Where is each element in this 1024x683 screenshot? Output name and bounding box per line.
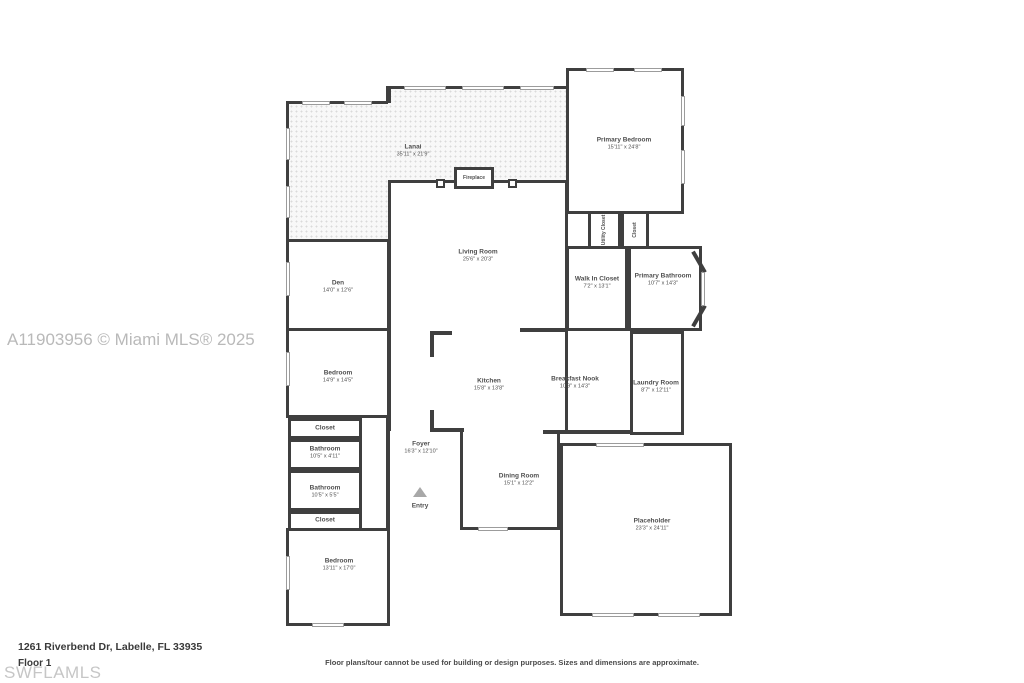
room-label-dining: Dining Room 15'1" x 12'2" <box>499 472 539 489</box>
wall-segment <box>520 328 568 332</box>
door-symbol <box>436 179 445 188</box>
room-label-kitchen: Kitchen 15'8" x 13'8" <box>474 377 504 394</box>
window <box>592 613 634 617</box>
room-label-placeholder: Placeholder 23'3" x 24'11" <box>634 517 671 534</box>
window <box>286 352 290 386</box>
room-label-utility-closet: Utility Closet <box>601 215 607 246</box>
window <box>596 443 644 447</box>
room-label-primary-bathroom: Primary Bathroom 10'7" x 14'3" <box>635 272 692 289</box>
wall-segment <box>430 428 464 432</box>
window <box>681 150 685 184</box>
entry-arrow-icon <box>413 487 427 497</box>
window <box>404 86 446 90</box>
room-label-bathroom-2: Bathroom 10'5" x 5'5" <box>310 484 341 501</box>
mls-watermark: A11903956 © Miami MLS® 2025 <box>7 330 255 350</box>
room-label-closet-a: Closet <box>315 423 335 432</box>
window <box>586 68 614 72</box>
property-address: 1261 Riverbend Dr, Labelle, FL 33935 <box>18 641 202 653</box>
room-label-breakfast-nook: Breakfast Nook 10'9" x 14'3" <box>551 375 599 392</box>
window <box>462 86 504 90</box>
fireplace: Fireplace <box>454 167 494 189</box>
window <box>634 68 662 72</box>
room-label-closet-b: Closet <box>315 515 335 524</box>
room-label-lanai: Lanai 35'11" x 21'9" <box>397 143 430 160</box>
room-living-room <box>388 183 568 431</box>
window <box>286 556 290 590</box>
window <box>658 613 700 617</box>
room-label-bathroom-1: Bathroom 10'5" x 4'11" <box>310 445 341 462</box>
window <box>681 96 685 126</box>
wall-segment <box>386 86 391 103</box>
room-label-walk-in-closet: Walk In Closet 7'2" x 13'1" <box>575 275 619 292</box>
window <box>286 128 290 160</box>
window <box>520 86 554 90</box>
room-label-bedroom-2: Bedroom 13'11" x 17'0" <box>323 557 356 574</box>
room-bedroom-2 <box>286 528 390 626</box>
window <box>286 262 290 296</box>
room-label-den: Den 14'0" x 12'6" <box>323 279 353 296</box>
window <box>478 527 508 531</box>
wall-segment <box>543 430 633 434</box>
room-label-foyer: Foyer 16'3" x 12'10" <box>404 440 437 457</box>
entry-label: Entry <box>412 501 429 510</box>
window <box>286 186 290 218</box>
room-lanai-left <box>286 101 390 242</box>
window <box>302 101 330 105</box>
room-label-bedroom-1: Bedroom 14'9" x 14'5" <box>323 369 353 386</box>
disclaimer-text: Floor plans/tour cannot be used for buil… <box>325 658 699 667</box>
floor-plan-page: { "colors": { "wall": "#3f3f3f", "waterm… <box>0 0 1024 682</box>
room-label-closet-top: Closet <box>632 222 638 237</box>
door-symbol <box>508 179 517 188</box>
fireplace-label: Fireplace <box>463 175 485 181</box>
window <box>312 623 344 627</box>
room-primary-bathroom <box>628 246 702 331</box>
room-label-living-room: Living Room 25'6" x 20'3" <box>458 248 497 265</box>
room-label-laundry: Laundry Room 8'7" x 12'11" <box>633 379 679 396</box>
window <box>344 101 372 105</box>
wall-segment <box>386 418 390 530</box>
room-label-primary-bedroom: Primary Bedroom 15'11" x 24'8" <box>597 136 652 153</box>
window <box>701 272 705 306</box>
floor-label: Floor 1 <box>18 658 51 669</box>
wall-segment <box>430 331 452 335</box>
